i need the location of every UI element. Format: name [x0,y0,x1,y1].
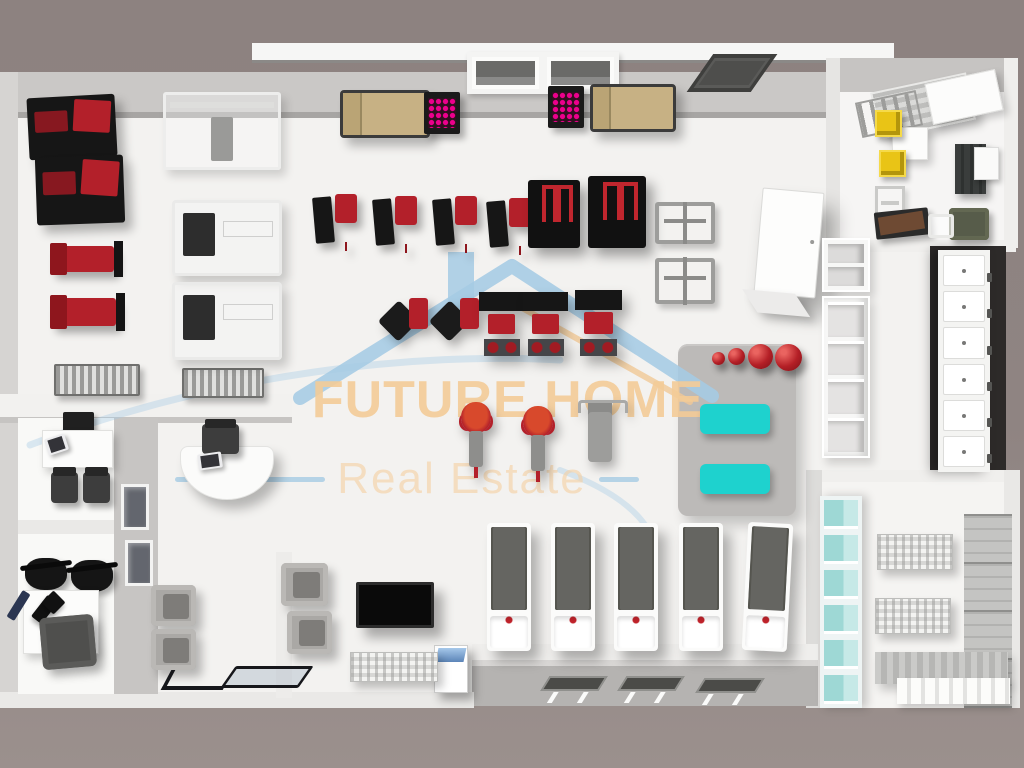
waiting-armchair-3 [281,563,328,606]
open-shelf-unit-cell-1 [828,302,864,337]
entrance-glass-door [220,666,313,688]
floor-mat-dark-2 [617,676,684,691]
plate-loaded-machine-2 [172,282,282,360]
floor-mat-dark-1 [540,676,607,691]
cable-crossover-station [163,92,281,170]
glass-display-case-1 [121,484,149,530]
recessed-strip-bevel [472,660,818,666]
manager-chair [949,208,989,240]
bottom-ledge [0,692,474,708]
teal-shelf-column-cell-6 [824,675,858,704]
flat-bench-2 [50,298,116,326]
locker-bank [938,250,990,472]
yellow-bin-2 [879,150,906,177]
towel-shelf-1 [877,534,953,570]
pullup-frame-1 [655,202,715,244]
treadmill-4 [679,523,723,651]
office-right-wall [1004,58,1018,248]
office-left-wall [826,58,840,248]
lounge-sofa-1 [340,90,430,138]
yellow-bin-1 [875,110,902,137]
medicine-ball-small-1 [712,352,725,365]
selectorized-machine-3 [434,196,480,252]
open-shelf-unit-cell-3 [828,379,864,414]
reception-chair [202,424,239,454]
teal-shelf-column-cell-1 [824,500,858,529]
spin-bike-1 [454,402,498,470]
teal-shelf-column-cell-3 [824,570,858,599]
teal-shelf-column-cell-2 [824,535,858,564]
office-a-chair-1 [51,472,78,503]
office-b-chair-1 [25,558,67,590]
squat-rack-bench-2 [523,292,568,356]
treadmill-5 [742,522,794,652]
flat-bench-1 [50,246,114,272]
selectorized-machine-2 [374,196,420,252]
gym-floorplan-render: FUTURE HOME Real Estate [0,0,1024,768]
elliptical-trainer [576,398,624,482]
storage-cabinet-white [753,187,824,298]
pink-dumbbell-rack-1 [424,92,460,134]
changing-bench-slats [897,678,1010,704]
treadmill-3 [614,523,658,651]
selectorized-machine-1 [314,194,360,250]
pec-fly-machine-2 [432,296,484,350]
office-a-chair-2 [83,472,110,503]
treadmill-1 [487,523,531,651]
open-shelf-unit [822,296,870,458]
locker-bank-cell-1 [943,255,985,286]
office-b-chair-2 [71,560,113,592]
wall-shelf-upper-cell-1 [828,244,864,263]
exercise-ball-large-2 [775,344,802,371]
wall-shelf-upper-cell-2 [828,267,864,286]
spin-bike-2 [516,406,560,474]
treadmill-2 [551,523,595,651]
top-wall-window-cell-1 [472,57,539,89]
entrance-door-frame [161,670,234,690]
wall-tv [356,582,434,628]
dumbbell-rack-2 [182,368,264,398]
waiting-armchair-2 [151,629,196,670]
waiting-armchair-1 [151,585,196,626]
squat-rack-bench-3 [575,290,622,356]
towel-shelf-2 [875,598,951,634]
locker-bank-cell-5 [943,400,985,431]
reception-laptop [197,451,223,470]
white-cabinet-box [974,147,999,180]
pullup-frame-2 [655,258,715,304]
teal-shelf-column-cell-5 [824,640,858,669]
plate-loaded-machine-1 [172,200,282,276]
assisted-dip-machine [588,176,646,248]
medicine-ball-small-2 [728,348,745,365]
incline-press-machine-1 [26,94,117,161]
guest-chair [928,214,954,238]
open-shelf-unit-cell-4 [828,418,864,453]
exercise-mat-teal-2 [700,464,770,494]
exercise-ball-large-1 [748,344,773,369]
locker-bank-cell-4 [943,364,985,395]
locker-bank-cell-2 [943,291,985,322]
waiting-armchair-4 [287,611,332,654]
wall-shelf-upper [822,238,870,292]
check-in-kiosk [434,645,468,693]
exercise-mat-teal-1 [700,404,770,434]
teal-shelf-column [820,496,862,708]
lounge-sofa-2 [590,84,676,132]
incline-press-machine-2 [35,154,125,225]
rooms-divider-wall [18,520,114,534]
dumbbell-rack-1 [54,364,140,396]
locker-bank-cell-3 [943,327,985,358]
office-b-sofa [39,614,97,671]
striped-bench-hall [350,652,438,682]
glass-display-case-2 [125,540,153,586]
lat-pulldown-machine [528,180,580,248]
pec-fly-machine-1 [381,296,433,350]
pink-dumbbell-rack-2 [548,86,584,128]
squat-rack-bench-1 [479,292,524,356]
open-shelf-unit-cell-2 [828,341,864,376]
floor-mat-dark-3 [695,678,764,693]
manager-desk [874,207,931,239]
locker-bank-cell-6 [943,436,985,467]
teal-shelf-column-cell-4 [824,605,858,634]
